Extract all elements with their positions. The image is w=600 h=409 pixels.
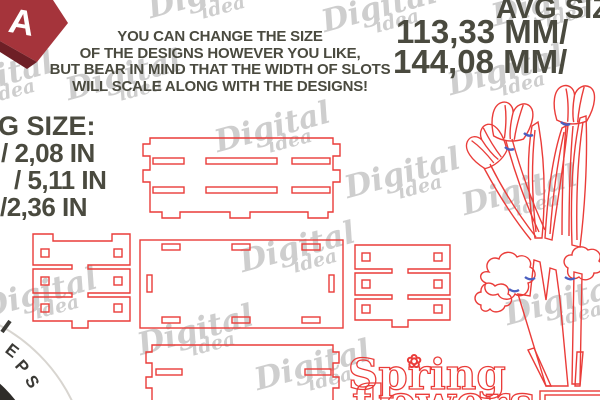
overlay-shapes — [0, 0, 600, 400]
